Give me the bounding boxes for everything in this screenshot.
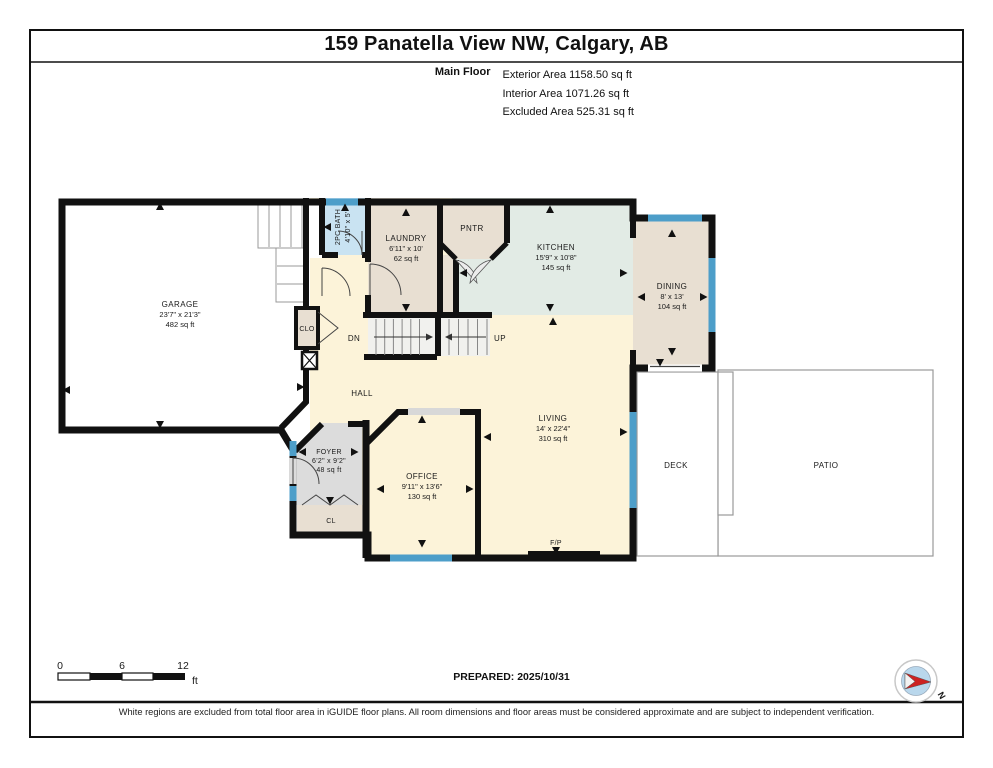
garage-label-name: GARAGE — [162, 300, 199, 309]
office-label-area: 130 sq ft — [408, 492, 438, 501]
window — [290, 486, 297, 501]
exterior-area: Exterior Area 1158.50 sq ft — [503, 66, 993, 85]
living-label-name: LIVING — [539, 414, 568, 423]
area-lines: Exterior Area 1158.50 sq ft Interior Are… — [497, 66, 993, 122]
office-label-dims: 9'11" x 13'6" — [402, 482, 443, 491]
disclaimer-text: White regions are excluded from total fl… — [0, 707, 993, 717]
page-title: 159 Panatella View NW, Calgary, AB — [0, 33, 993, 56]
deck-step — [718, 372, 733, 515]
kitchen-label-dims: 15'9" x 10'8" — [535, 253, 576, 262]
office-label-name: OFFICE — [406, 472, 438, 481]
pantry-label: PNTR — [460, 224, 483, 233]
excluded-area: Excluded Area 525.31 sq ft — [503, 103, 993, 122]
floor-label: Main Floor — [0, 66, 497, 122]
hall-label: HALL — [351, 389, 373, 398]
compass-n-label: N — [936, 690, 948, 701]
fireplace-label: F/P — [550, 540, 562, 547]
cl-label: CL — [326, 518, 336, 525]
patio-door-opening — [648, 365, 702, 372]
fireplace-hearth — [528, 551, 600, 560]
floor-summary: Main Floor Exterior Area 1158.50 sq ft I… — [0, 66, 993, 122]
deck-label: DECK — [664, 461, 688, 470]
kitchen-label-area: 145 sq ft — [542, 263, 572, 272]
bath-label-name: 2PC BATH — [335, 209, 342, 245]
garage-label-dims: 23'7" x 21'3" — [159, 310, 200, 319]
prepared-date: PREPARED: 2025/10/31 — [30, 671, 993, 683]
dining-label-area: 104 sq ft — [658, 302, 688, 311]
dining-label-name: DINING — [657, 282, 687, 291]
patio-label: PATIO — [814, 461, 839, 470]
laundry-label-dims: 6'11" x 10' — [389, 244, 423, 253]
window — [326, 199, 358, 206]
window — [630, 412, 637, 508]
clo-label: CLO — [299, 326, 315, 333]
garage-label-area: 482 sq ft — [166, 320, 196, 329]
room-fills — [62, 198, 712, 558]
foyer-label-area: 48 sq ft — [316, 467, 341, 474]
office-opening — [408, 408, 460, 415]
bath-label-dims: 4'10" x 5' — [345, 211, 352, 242]
window — [290, 441, 297, 456]
stair-railing — [364, 354, 437, 360]
interior-area: Interior Area 1071.26 sq ft — [503, 85, 993, 104]
living-label-dims: 14' x 22'4" — [536, 424, 571, 433]
floor-plan-page: GARAGE 23'7" x 21'3" 482 sq ft 2PC BATH … — [0, 0, 993, 768]
kitchen-label-name: KITCHEN — [537, 243, 575, 252]
foyer-label-name: FOYER — [316, 449, 342, 456]
laundry-label-name: LAUNDRY — [386, 234, 427, 243]
living-label-area: 310 sq ft — [539, 434, 569, 443]
laundry-label-area: 62 sq ft — [394, 254, 420, 263]
window — [390, 555, 452, 562]
window — [648, 215, 702, 222]
foyer-label-dims: 6'2" x 9'2" — [312, 458, 346, 465]
stairs-up-label: UP — [494, 334, 506, 343]
dining-label-dims: 8' x 13' — [660, 292, 684, 301]
stair-divider — [435, 318, 441, 356]
window — [709, 258, 716, 332]
stairs-down-label: DN — [348, 334, 360, 343]
